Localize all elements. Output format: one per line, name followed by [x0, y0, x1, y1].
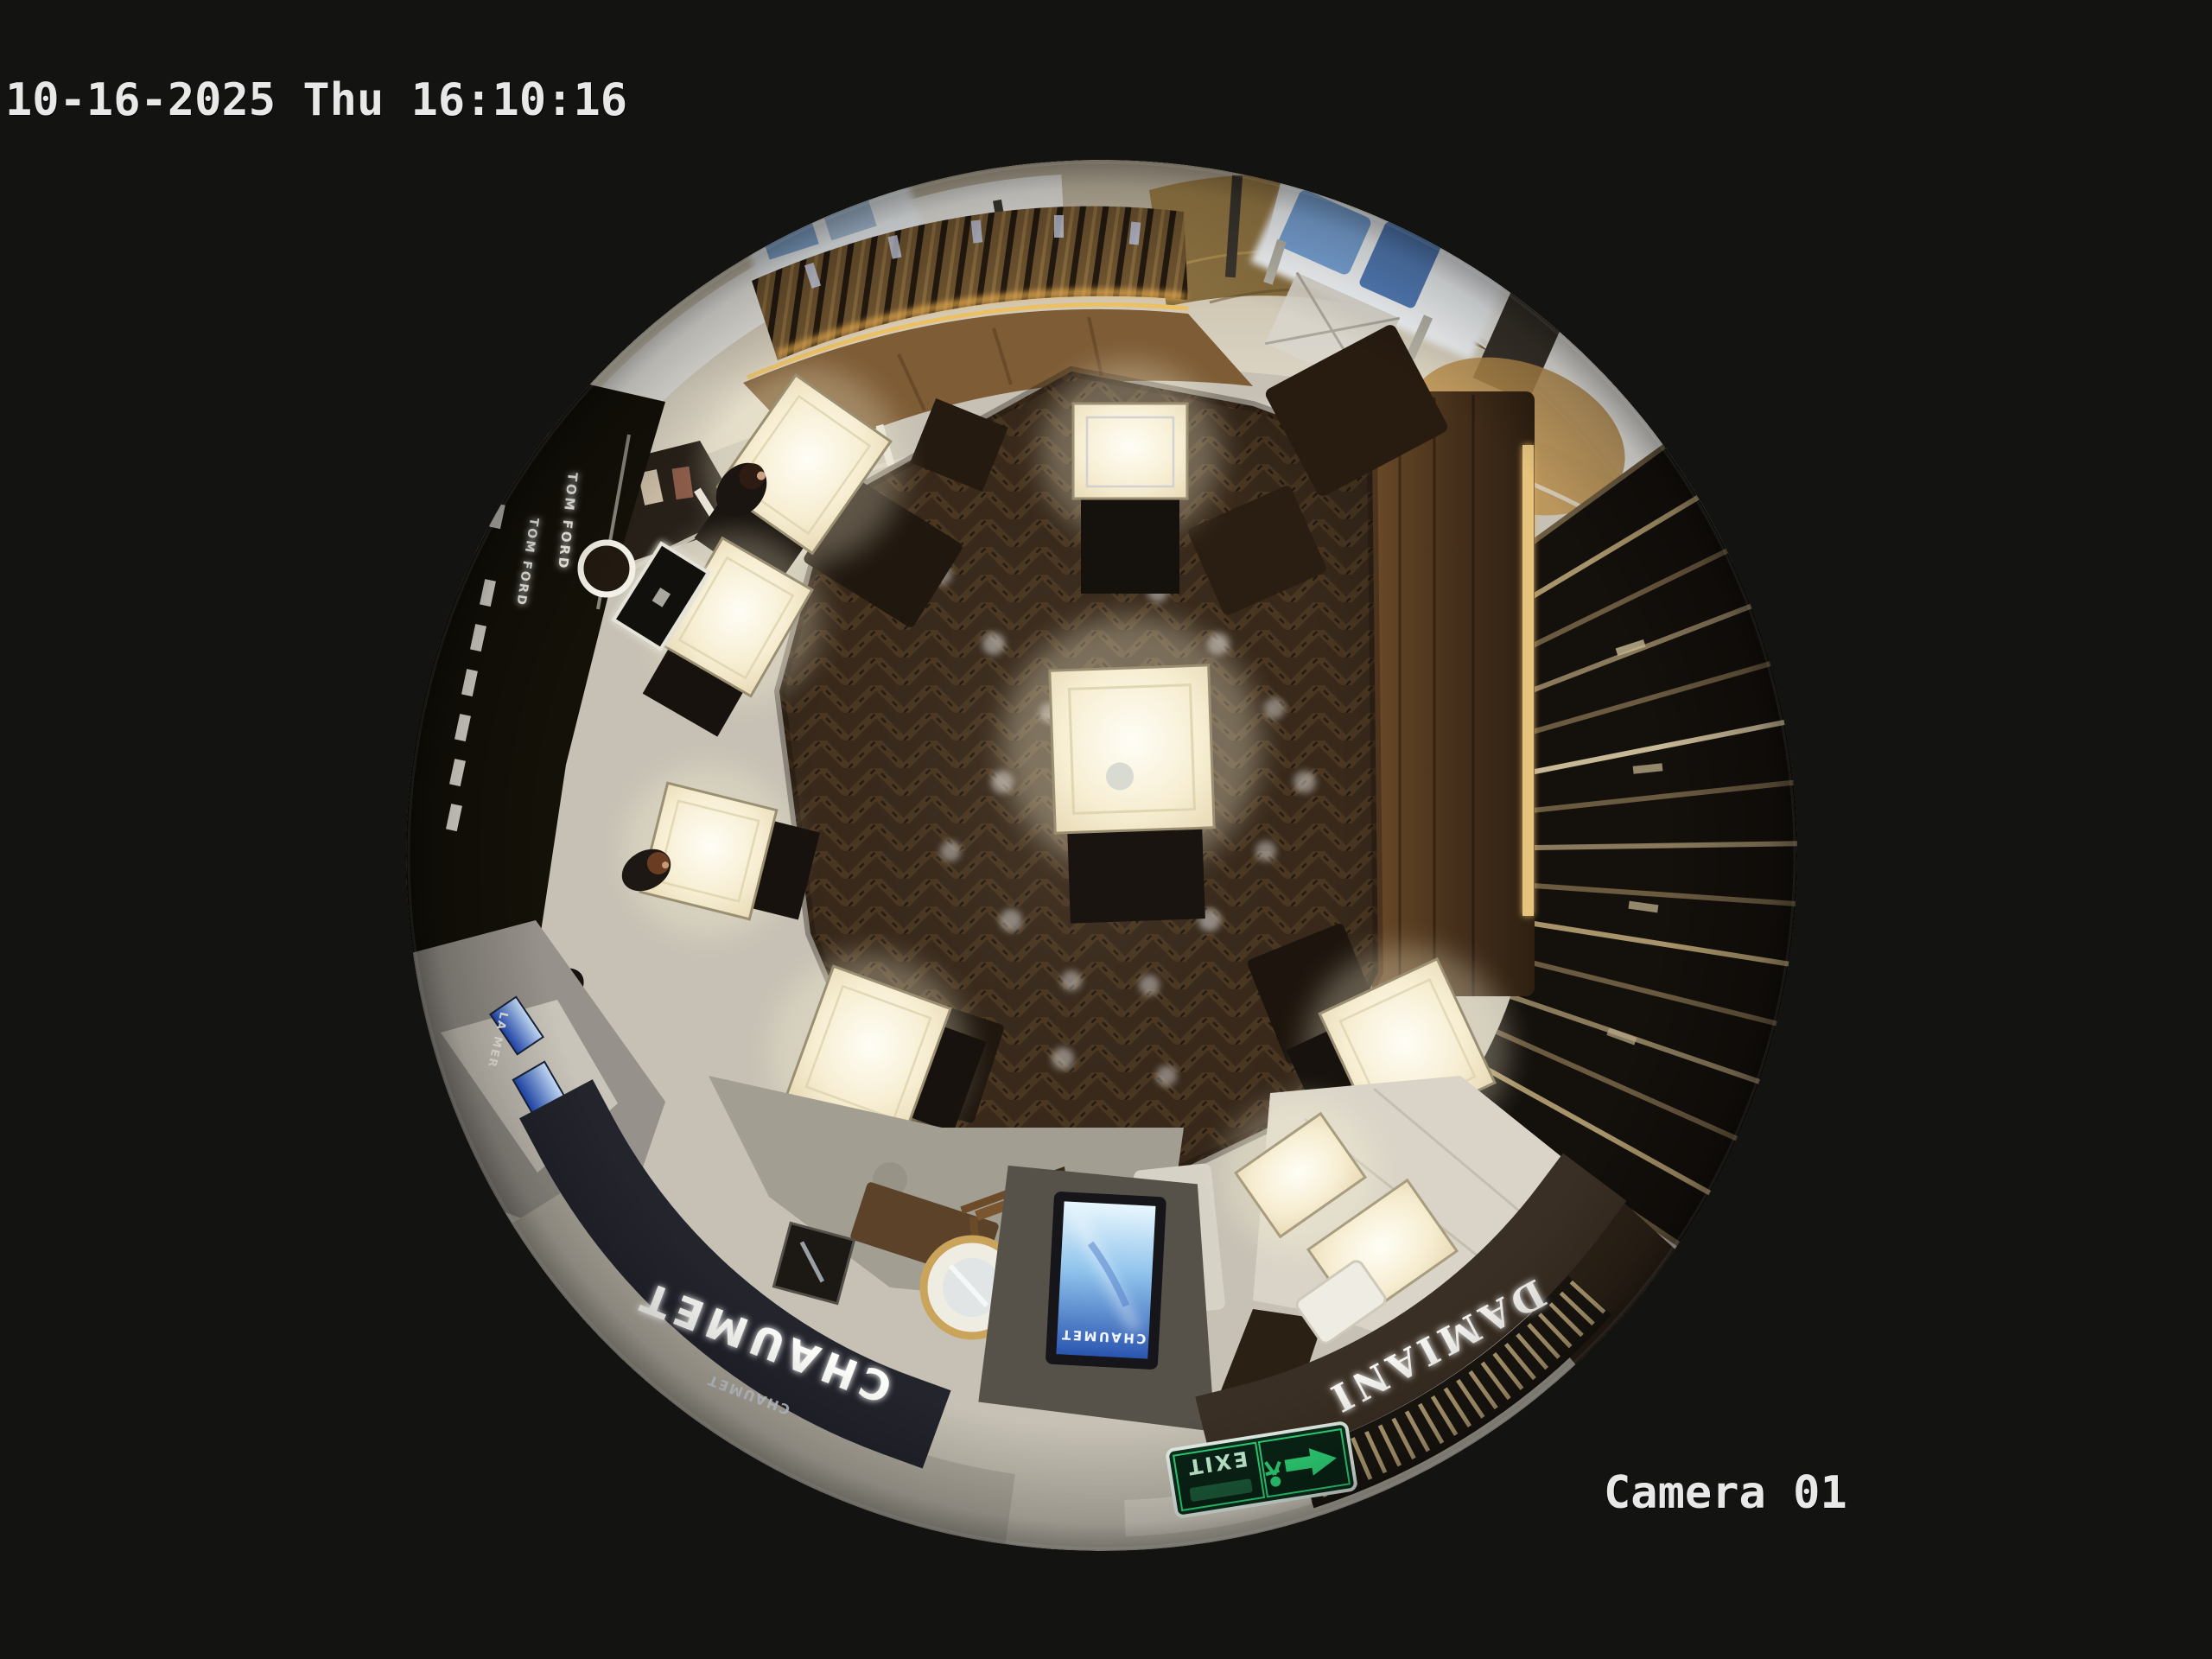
vignette: [406, 160, 1797, 1551]
osd-timestamp: 10-16-2025 Thu 16:10:16: [5, 78, 627, 123]
fisheye-view: TOM FORD TOM FORD TOM FORD TOM FORD: [406, 160, 1797, 1551]
osd-camera-label: Camera 01: [1604, 1471, 1847, 1516]
cctv-frame: 10-16-2025 Thu 16:10:16 Camera 01: [0, 0, 2212, 1659]
